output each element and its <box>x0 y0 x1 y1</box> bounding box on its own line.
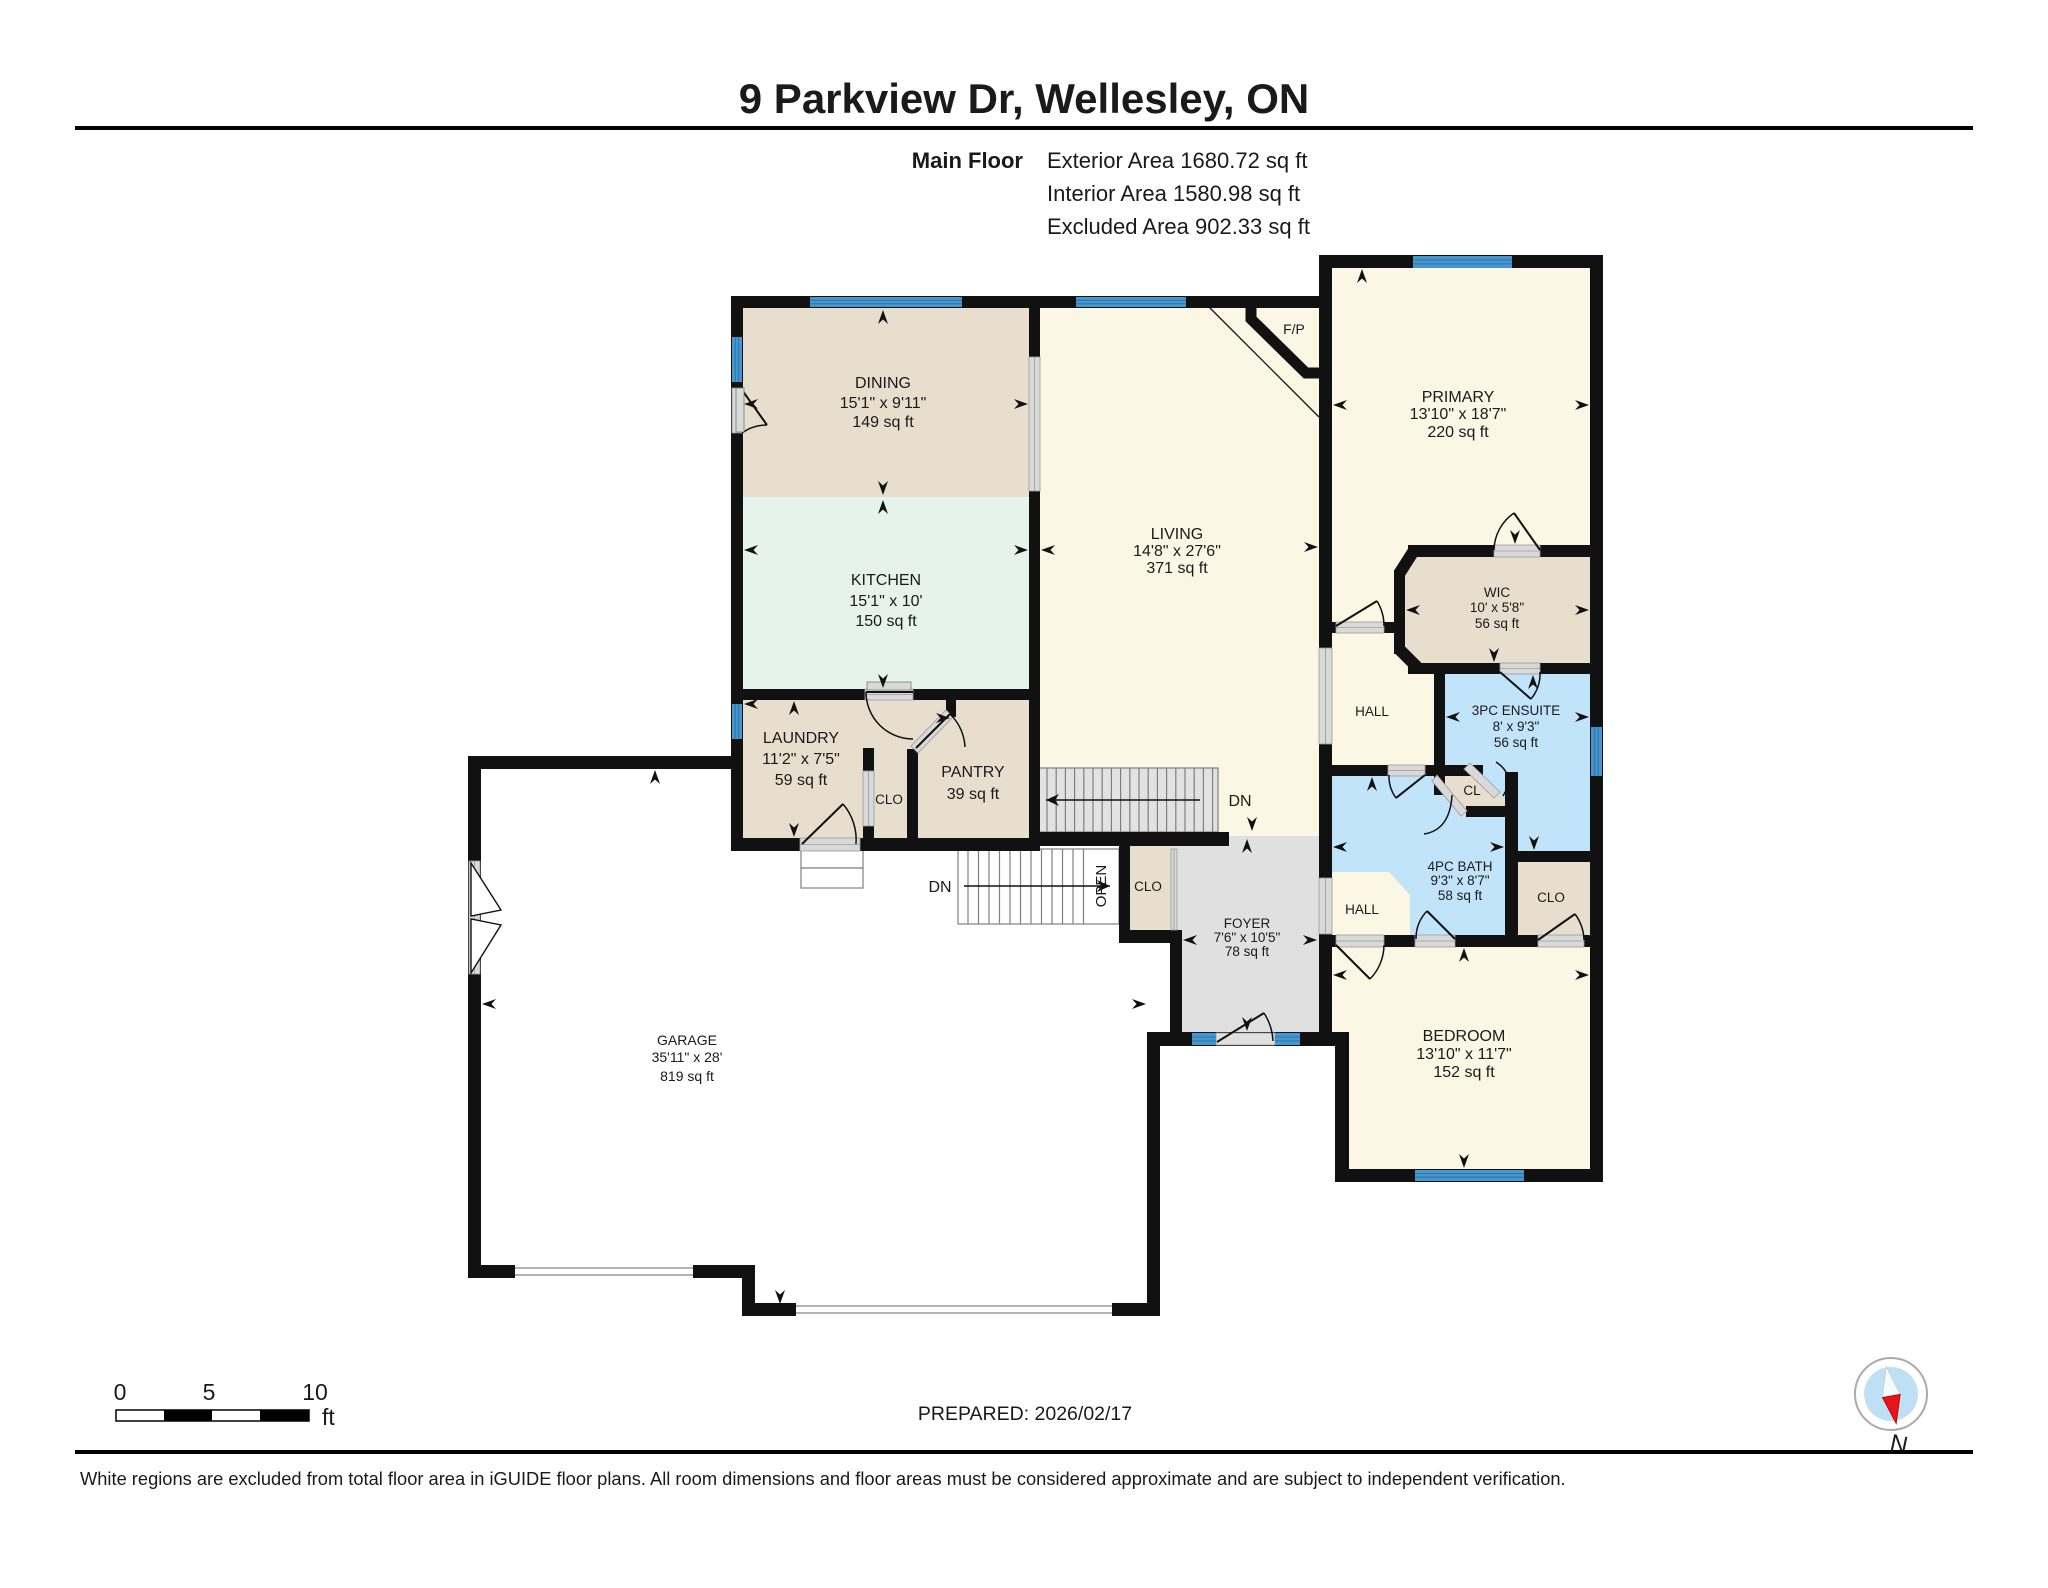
svg-text:Interior Area 1580.98 sq ft: Interior Area 1580.98 sq ft <box>1047 181 1300 206</box>
svg-text:9 Parkview Dr, Wellesley, ON: 9 Parkview Dr, Wellesley, ON <box>739 75 1309 122</box>
svg-text:DN: DN <box>928 879 951 896</box>
svg-text:CLO: CLO <box>1134 879 1162 894</box>
svg-text:56 sq ft: 56 sq ft <box>1475 616 1520 631</box>
svg-text:371 sq ft: 371 sq ft <box>1146 560 1208 577</box>
svg-text:PANTRY: PANTRY <box>941 764 1005 781</box>
svg-text:39 sq ft: 39 sq ft <box>947 786 1000 803</box>
svg-text:Main Floor: Main Floor <box>912 148 1024 173</box>
svg-text:220 sq ft: 220 sq ft <box>1427 424 1489 441</box>
svg-text:11'2" x 7'5": 11'2" x 7'5" <box>762 751 840 768</box>
svg-text:PREPARED: 2026/02/17: PREPARED: 2026/02/17 <box>918 1403 1132 1425</box>
svg-text:15'1" x 10': 15'1" x 10' <box>849 593 922 610</box>
svg-text:7'6" x 10'5": 7'6" x 10'5" <box>1214 930 1281 945</box>
svg-text:HALL: HALL <box>1345 902 1379 917</box>
svg-text:DN: DN <box>1228 793 1251 810</box>
svg-text:78 sq ft: 78 sq ft <box>1225 944 1270 959</box>
svg-text:F/P: F/P <box>1283 321 1305 337</box>
svg-text:58 sq ft: 58 sq ft <box>1438 888 1483 903</box>
svg-text:59 sq ft: 59 sq ft <box>775 772 828 789</box>
svg-text:13'10" x 18'7": 13'10" x 18'7" <box>1410 406 1507 423</box>
svg-text:14'8" x 27'6": 14'8" x 27'6" <box>1133 543 1221 560</box>
svg-text:56 sq ft: 56 sq ft <box>1494 735 1539 750</box>
svg-text:Excluded Area 902.33 sq ft: Excluded Area 902.33 sq ft <box>1047 214 1310 239</box>
svg-text:KITCHEN: KITCHEN <box>851 572 921 589</box>
svg-text:LAUNDRY: LAUNDRY <box>763 730 840 747</box>
svg-text:819 sq ft: 819 sq ft <box>660 1068 714 1084</box>
svg-text:8' x 9'3": 8' x 9'3" <box>1493 719 1540 734</box>
svg-text:9'3" x 8'7": 9'3" x 8'7" <box>1430 873 1489 888</box>
svg-text:149 sq ft: 149 sq ft <box>852 414 914 431</box>
svg-text:GARAGE: GARAGE <box>657 1032 717 1048</box>
svg-text:4PC BATH: 4PC BATH <box>1427 859 1492 874</box>
svg-text:LIVING: LIVING <box>1151 526 1203 543</box>
svg-text:152 sq ft: 152 sq ft <box>1433 1064 1495 1081</box>
svg-text:5: 5 <box>203 1379 216 1405</box>
svg-text:ft: ft <box>322 1404 335 1430</box>
svg-text:BEDROOM: BEDROOM <box>1423 1028 1506 1045</box>
svg-text:PRIMARY: PRIMARY <box>1422 389 1495 406</box>
svg-text:3PC ENSUITE: 3PC ENSUITE <box>1472 703 1561 718</box>
svg-text:35'11" x 28': 35'11" x 28' <box>652 1049 723 1065</box>
svg-text:CL: CL <box>1463 783 1481 798</box>
svg-text:DINING: DINING <box>855 375 911 392</box>
svg-text:White regions are excluded fro: White regions are excluded from total fl… <box>80 1468 1566 1489</box>
svg-text:OPEN: OPEN <box>1093 865 1110 908</box>
svg-text:HALL: HALL <box>1355 704 1389 719</box>
svg-text:15'1" x 9'11": 15'1" x 9'11" <box>840 395 927 412</box>
svg-text:CLO: CLO <box>875 792 903 807</box>
svg-text:13'10" x 11'7": 13'10" x 11'7" <box>1416 1046 1511 1063</box>
svg-text:Exterior Area 1680.72 sq ft: Exterior Area 1680.72 sq ft <box>1047 148 1308 173</box>
svg-text:CLO: CLO <box>1537 890 1565 905</box>
svg-text:10' x 5'8": 10' x 5'8" <box>1470 600 1524 615</box>
svg-text:0: 0 <box>114 1379 127 1405</box>
svg-text:10: 10 <box>302 1379 328 1405</box>
svg-text:FOYER: FOYER <box>1224 916 1271 931</box>
svg-text:WIC: WIC <box>1484 585 1510 600</box>
svg-text:150 sq ft: 150 sq ft <box>855 613 917 630</box>
